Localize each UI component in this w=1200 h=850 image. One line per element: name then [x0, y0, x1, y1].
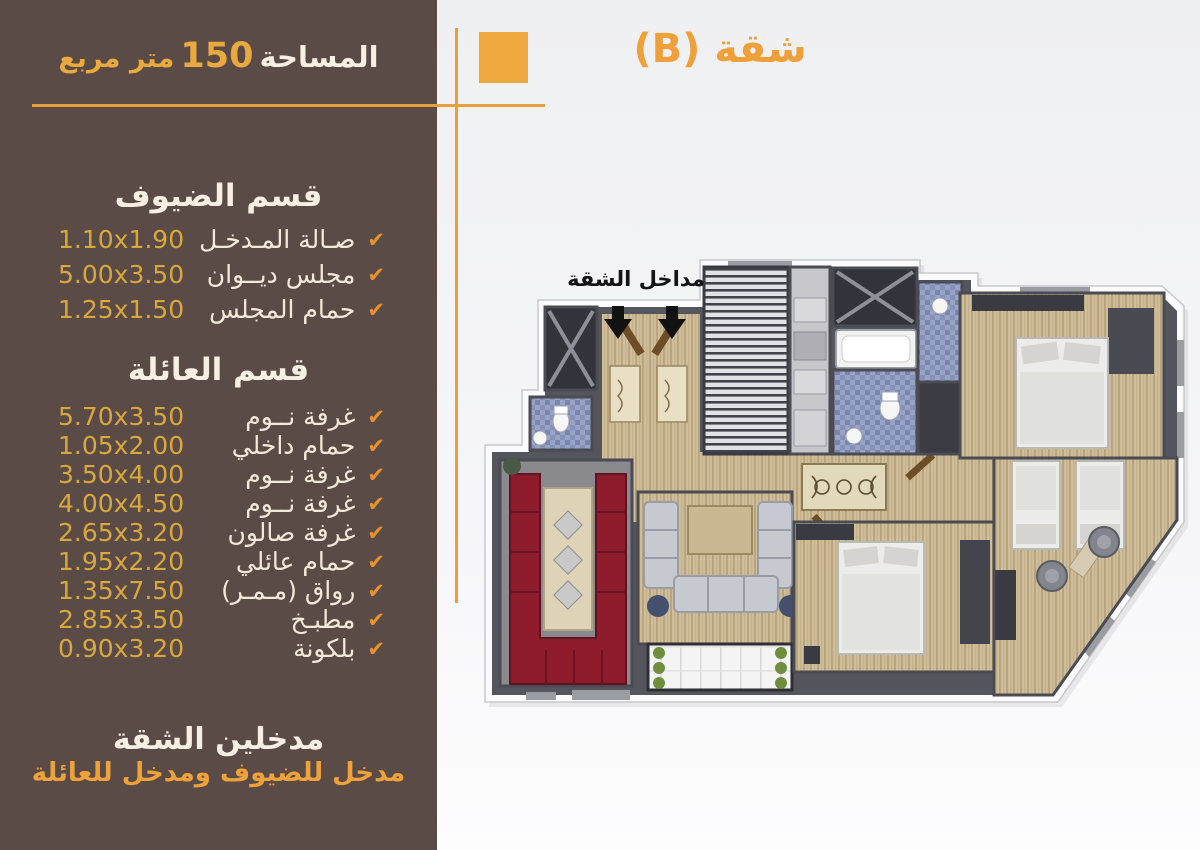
orange-square-decoration: [479, 32, 528, 83]
bed: [838, 542, 924, 654]
room-row: بلكونة 0.90x3.20: [0, 634, 437, 663]
wardrobe: [994, 570, 1016, 640]
check-icon: [367, 521, 385, 545]
plant: [503, 457, 521, 475]
check-icon: [367, 405, 385, 429]
room-row: مطبـخ 2.85x3.50: [0, 605, 437, 634]
guest-section-title: قسم الضيوف: [0, 178, 437, 214]
twin-bed: [1012, 461, 1060, 549]
coffee-table: [688, 506, 752, 554]
check-icon: [367, 637, 385, 661]
room-name: غرفة نــوم: [215, 489, 356, 518]
wardrobe: [918, 382, 962, 454]
room-name: حمام داخلي: [208, 431, 355, 460]
room-name: صـالة المـدخـل: [192, 225, 356, 254]
room-name: غرفة نــوم: [215, 460, 356, 489]
area-label: المساحة: [259, 40, 378, 74]
check-icon: [367, 579, 385, 603]
check-icon: [367, 434, 385, 458]
room-name: بلكونة: [239, 634, 356, 663]
room-row: صـالة المـدخـل 1.10x1.90: [0, 222, 437, 257]
room-dimensions: 0.90x3.20: [58, 634, 184, 663]
floor-plan: مداخل الشقة: [460, 240, 1200, 710]
double-bed: [1016, 338, 1108, 448]
room-name: مطبـخ: [237, 605, 355, 634]
plant: [653, 662, 665, 674]
living-room: [638, 492, 801, 644]
closet: [960, 540, 990, 644]
room-row: غرفة صالون 2.65x3.20: [0, 518, 437, 547]
room-name: غرفة نــوم: [215, 402, 356, 431]
room-name: غرفة صالون: [206, 518, 356, 547]
room-row: مجلس ديــوان 5.00x3.50: [0, 257, 437, 292]
room-dimensions: 1.35x7.50: [58, 576, 184, 605]
guest-section-rows: صـالة المـدخـل 1.10x1.90 مجلس ديــوان 5.…: [0, 222, 437, 327]
entrances-detail: مدخل للضيوف ومدخل للعائلة: [0, 758, 437, 788]
flyer-page: { "header": { "area_label": "المساحة", "…: [0, 0, 1200, 850]
inner-bathroom: [918, 282, 962, 454]
room-dimensions: 1.95x2.20: [58, 547, 184, 576]
area-unit: متر مربع: [58, 43, 174, 74]
majlis-room: [500, 457, 632, 686]
check-icon: [367, 263, 385, 287]
staircase: [704, 267, 788, 454]
room-name: مجلس ديــوان: [195, 260, 355, 289]
elevator-1: [545, 307, 597, 390]
vertical-accent-line: [455, 28, 458, 603]
family-bedroom: [794, 522, 994, 672]
check-icon: [367, 298, 385, 322]
check-icon: [367, 228, 385, 252]
room-dimensions: 5.70x3.50: [58, 402, 184, 431]
room-dimensions: 4.00x4.50: [58, 489, 184, 518]
room-row: حمام داخلي 1.05x2.00: [0, 431, 437, 460]
closet: [1108, 308, 1154, 374]
family-section-rows: غرفة نــوم 5.70x3.50 حمام داخلي 1.05x2.0…: [0, 402, 437, 663]
room-row: غرفة نــوم 4.00x4.50: [0, 489, 437, 518]
plant: [775, 677, 787, 689]
plant: [653, 647, 665, 659]
room-dimensions: 1.25x1.50: [58, 295, 184, 324]
plant: [775, 647, 787, 659]
kitchen: [790, 267, 830, 454]
room-name: حمام عائلي: [210, 547, 355, 576]
nightstand: [804, 646, 820, 664]
check-icon: [367, 550, 385, 574]
horizontal-accent-line: [32, 104, 545, 107]
family-bathroom: [833, 330, 917, 454]
entrances-heading: مدخلين الشقة: [0, 722, 437, 757]
check-icon: [367, 492, 385, 516]
room-row: غرفة نــوم 3.50x4.00: [0, 460, 437, 489]
room-dimensions: 1.10x1.90: [58, 225, 184, 254]
plant: [647, 595, 669, 617]
plant: [775, 662, 787, 674]
room-dimensions: 2.65x3.20: [58, 518, 184, 547]
wardrobe: [796, 524, 854, 540]
balcony: [648, 644, 792, 690]
entrances-label: مداخل الشقة: [567, 267, 705, 291]
room-name: رواق (مـمـر): [203, 576, 356, 605]
plant: [653, 677, 665, 689]
guest-bathroom: [530, 397, 592, 450]
room-dimensions: 2.85x3.50: [58, 605, 184, 634]
carpet-diamonds: [554, 511, 582, 609]
family-section-title: قسم العائلة: [0, 352, 437, 388]
sofa: [644, 502, 678, 588]
info-sidebar: المساحة150متر مربع قسم الضيوف صـالة المـ…: [0, 0, 437, 850]
room-row: حمام عائلي 1.95x2.20: [0, 547, 437, 576]
couch: [674, 576, 778, 612]
room-dimensions: 5.00x3.50: [58, 260, 184, 289]
room-row: رواق (مـمـر) 1.35x7.50: [0, 576, 437, 605]
room-row: حمام المجلس 1.25x1.50: [0, 292, 437, 327]
room-name: حمام المجلس: [197, 295, 356, 324]
wardrobe: [972, 295, 1084, 311]
room-row: غرفة نــوم 5.70x3.50: [0, 402, 437, 431]
check-icon: [367, 608, 385, 632]
master-bedroom: [960, 293, 1164, 458]
room-dimensions: 1.05x2.00: [58, 431, 184, 460]
apartment-title: شقة (B): [575, 26, 865, 72]
area-summary: المساحة150متر مربع: [0, 36, 437, 76]
check-icon: [367, 463, 385, 487]
area-value: 150: [174, 36, 259, 76]
elevator-2: [833, 268, 917, 326]
room-dimensions: 3.50x4.00: [58, 460, 184, 489]
